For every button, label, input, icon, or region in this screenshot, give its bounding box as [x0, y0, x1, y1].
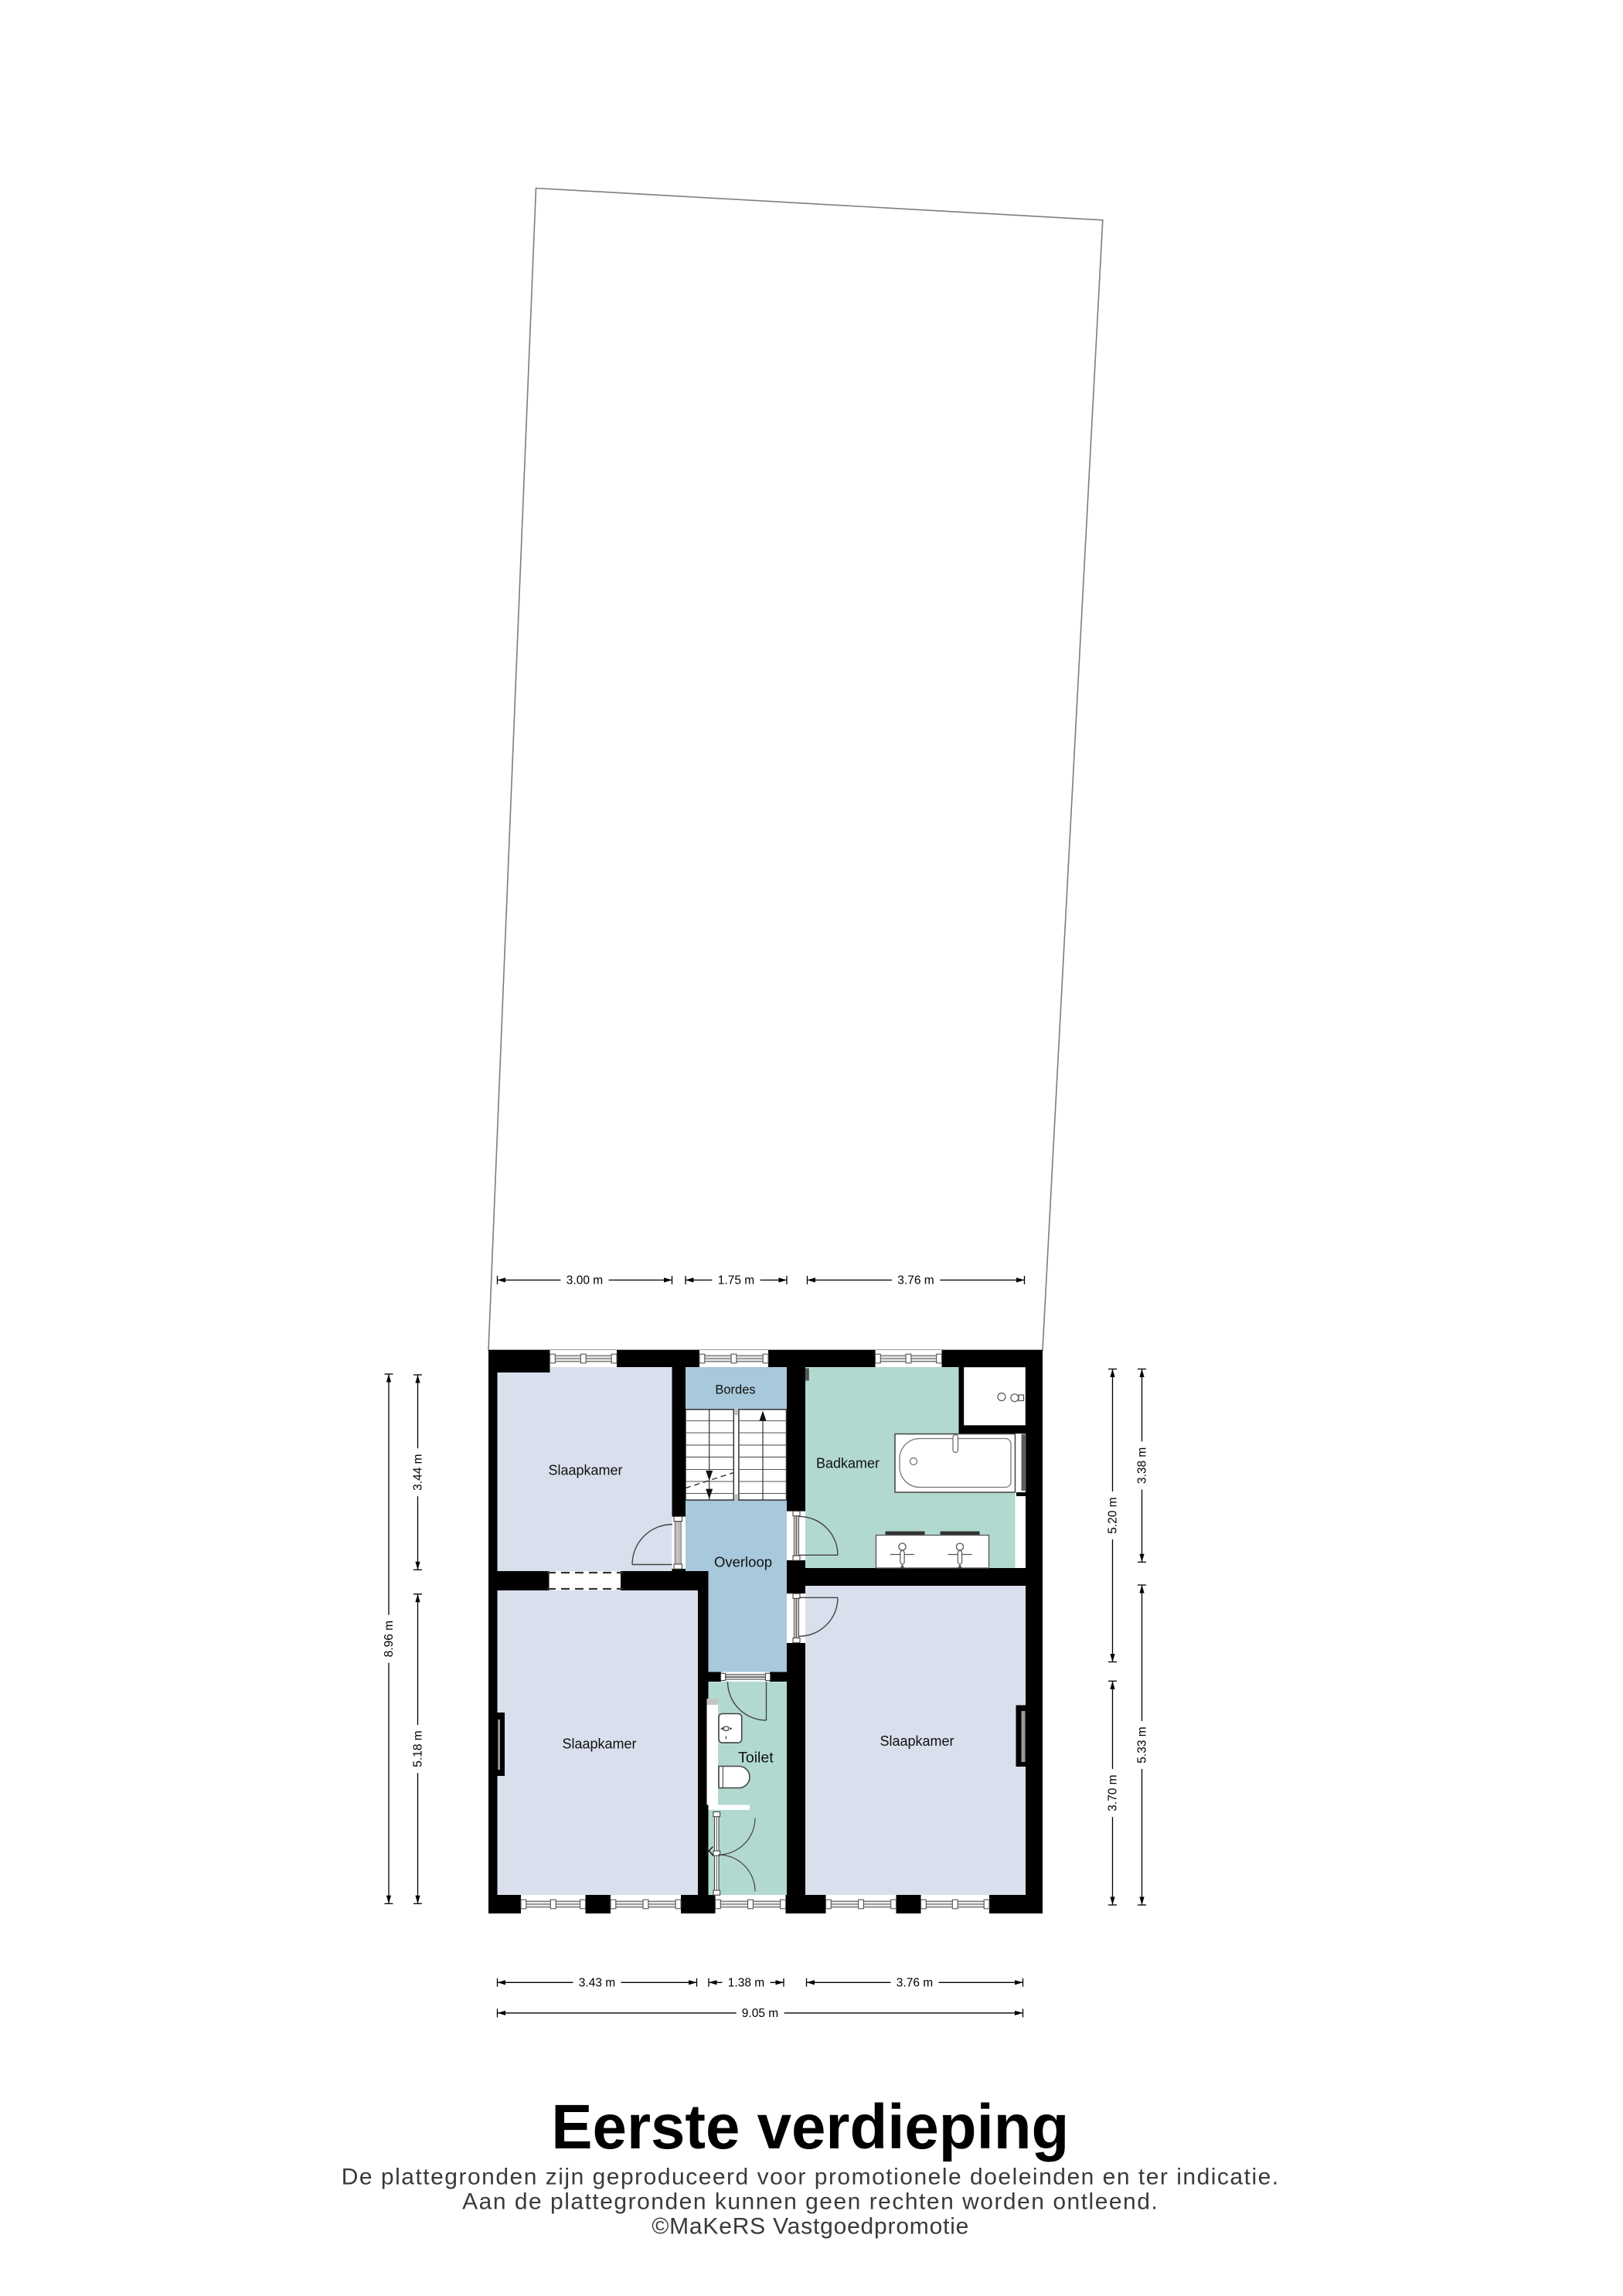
svg-text:1.75 m: 1.75 m — [718, 1274, 754, 1287]
svg-text:Slaapkamer: Slaapkamer — [562, 1736, 636, 1752]
svg-text:3.76 m: 3.76 m — [897, 1977, 933, 1990]
svg-text:Eerste verdieping: Eerste verdieping — [551, 2092, 1069, 2162]
svg-text:5.20 m: 5.20 m — [1107, 1497, 1120, 1533]
svg-text:5.33 m: 5.33 m — [1136, 1726, 1149, 1763]
svg-text:Bordes: Bordes — [715, 1383, 755, 1397]
svg-text:Aan de plattegronden kunnen ge: Aan de plattegronden kunnen geen rechten… — [462, 2189, 1159, 2215]
svg-text:3.38 m: 3.38 m — [1136, 1447, 1149, 1484]
svg-text:5.18 m: 5.18 m — [412, 1730, 425, 1767]
svg-text:Slaapkamer: Slaapkamer — [880, 1733, 954, 1749]
svg-text:3.44 m: 3.44 m — [412, 1454, 425, 1490]
svg-text:©MaKeRS Vastgoedpromotie: ©MaKeRS Vastgoedpromotie — [652, 2214, 969, 2240]
svg-text:3.43 m: 3.43 m — [579, 1977, 615, 1990]
svg-text:3.00 m: 3.00 m — [567, 1274, 603, 1287]
svg-text:3.76 m: 3.76 m — [897, 1274, 934, 1287]
svg-text:Badkamer: Badkamer — [816, 1456, 880, 1471]
svg-text:3.70 m: 3.70 m — [1107, 1774, 1120, 1811]
svg-text:Slaapkamer: Slaapkamer — [548, 1463, 622, 1478]
svg-text:Overloop: Overloop — [714, 1554, 772, 1570]
svg-text:Toilet: Toilet — [738, 1750, 774, 1767]
svg-text:1.38 m: 1.38 m — [728, 1977, 764, 1990]
svg-text:9.05 m: 9.05 m — [742, 2007, 778, 2020]
svg-text:K: K — [706, 1844, 715, 1859]
svg-text:De plattegronden zijn geproduc: De plattegronden zijn geproduceerd voor … — [342, 2165, 1280, 2190]
svg-text:8.96 m: 8.96 m — [383, 1621, 396, 1657]
